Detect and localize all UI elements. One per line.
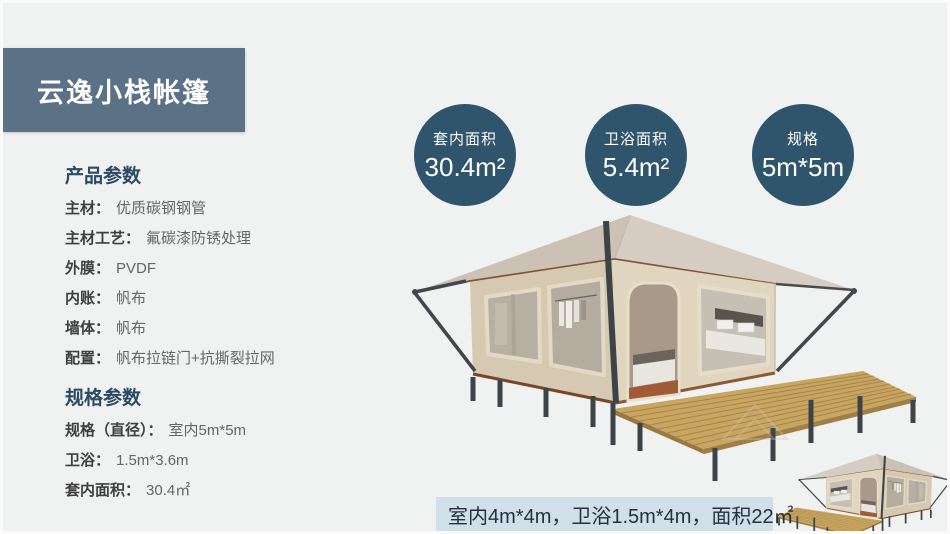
- awning-rod: [777, 291, 854, 371]
- mini-tent-render: [778, 454, 950, 534]
- caption-text: 室内4m*4m，卫浴1.5m*4m，面积22㎡: [448, 506, 794, 528]
- hanging-clothes: [574, 300, 579, 322]
- product-spec-slide: 云逸小栈帐篷 套内面积 30.4m² 卫浴面积 5.4m² 规格 5m*5m 产…: [0, 0, 950, 534]
- pillow: [717, 320, 733, 329]
- window-interior-hint: [495, 303, 507, 345]
- hanging-clothes: [581, 300, 586, 320]
- tent-render: [3, 3, 950, 534]
- hanging-clothes: [559, 302, 564, 326]
- tent-window: [549, 279, 604, 375]
- awning-rod: [415, 293, 475, 371]
- hanging-clothes: [566, 301, 572, 328]
- glamping-tent-main: [412, 215, 916, 481]
- pillow: [738, 323, 754, 332]
- tent-window: [699, 286, 768, 374]
- awning-rod: [415, 281, 466, 292]
- caption-bar: 室内4m*4m，卫浴1.5m*4m，面积22㎡: [436, 497, 773, 534]
